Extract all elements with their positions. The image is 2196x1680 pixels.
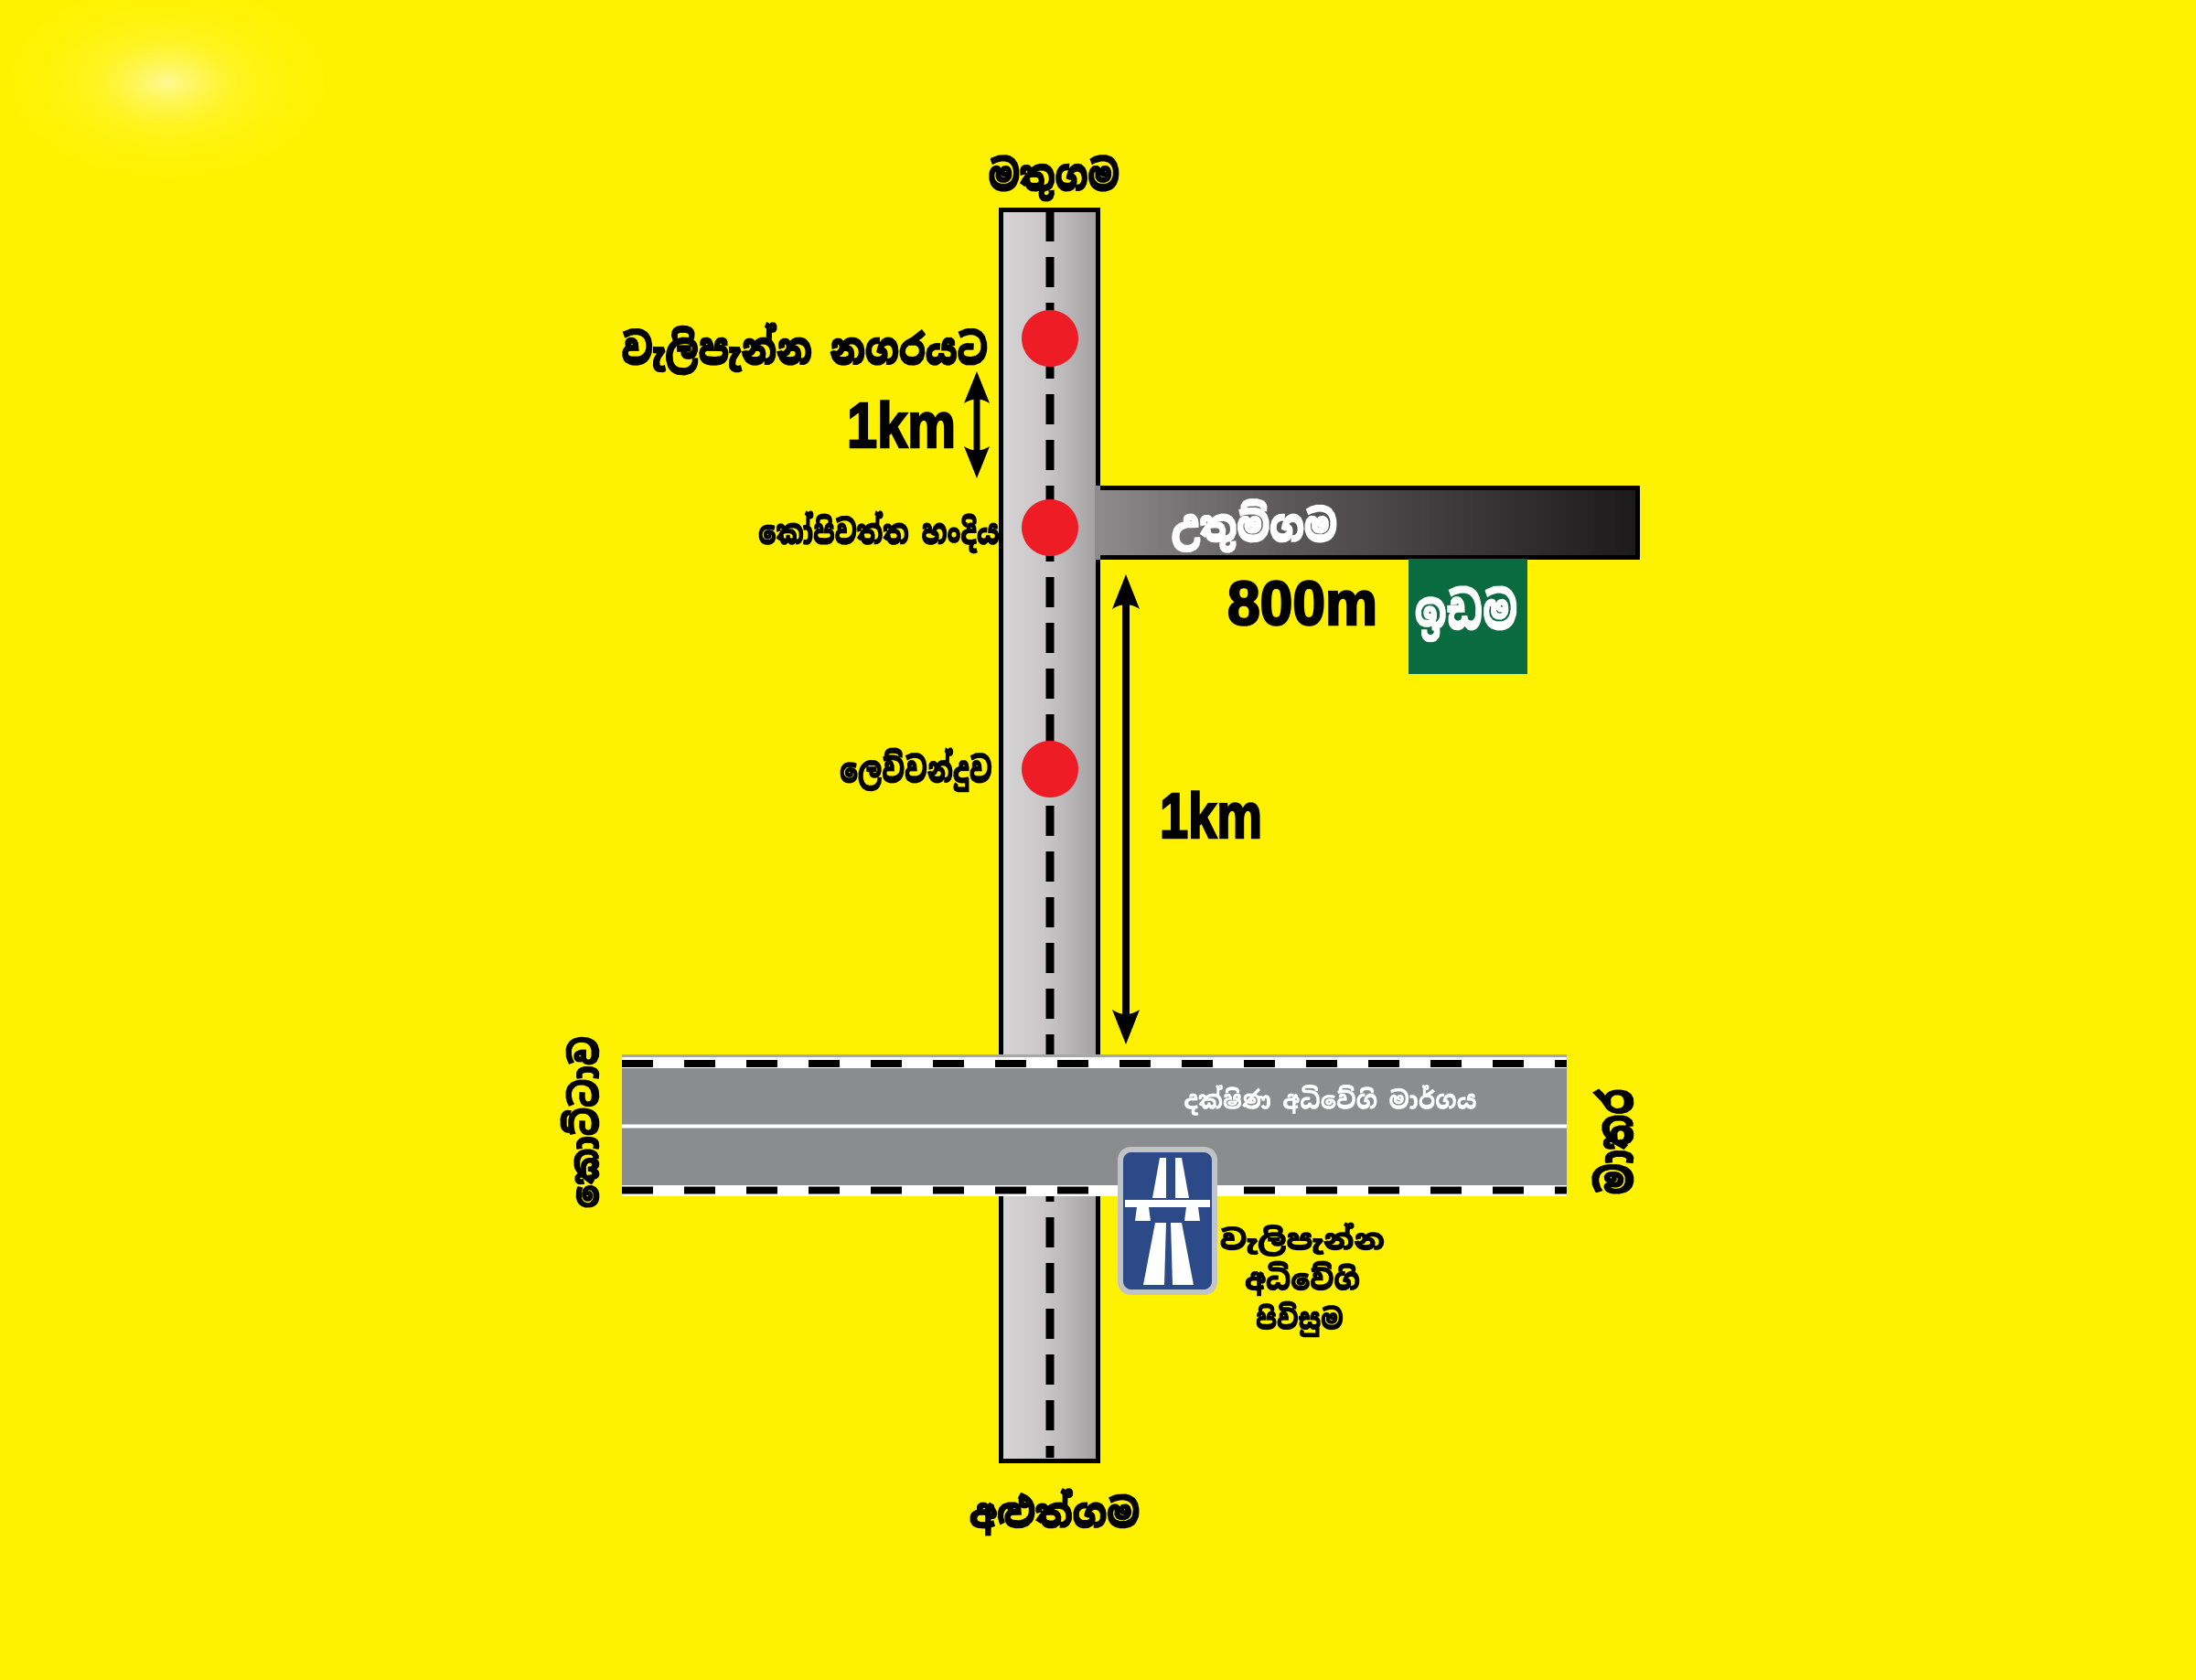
svg-text:1km: 1km: [1160, 780, 1262, 851]
svg-text:1km: 1km: [847, 390, 956, 461]
svg-text:800m: 800m: [1227, 569, 1377, 638]
